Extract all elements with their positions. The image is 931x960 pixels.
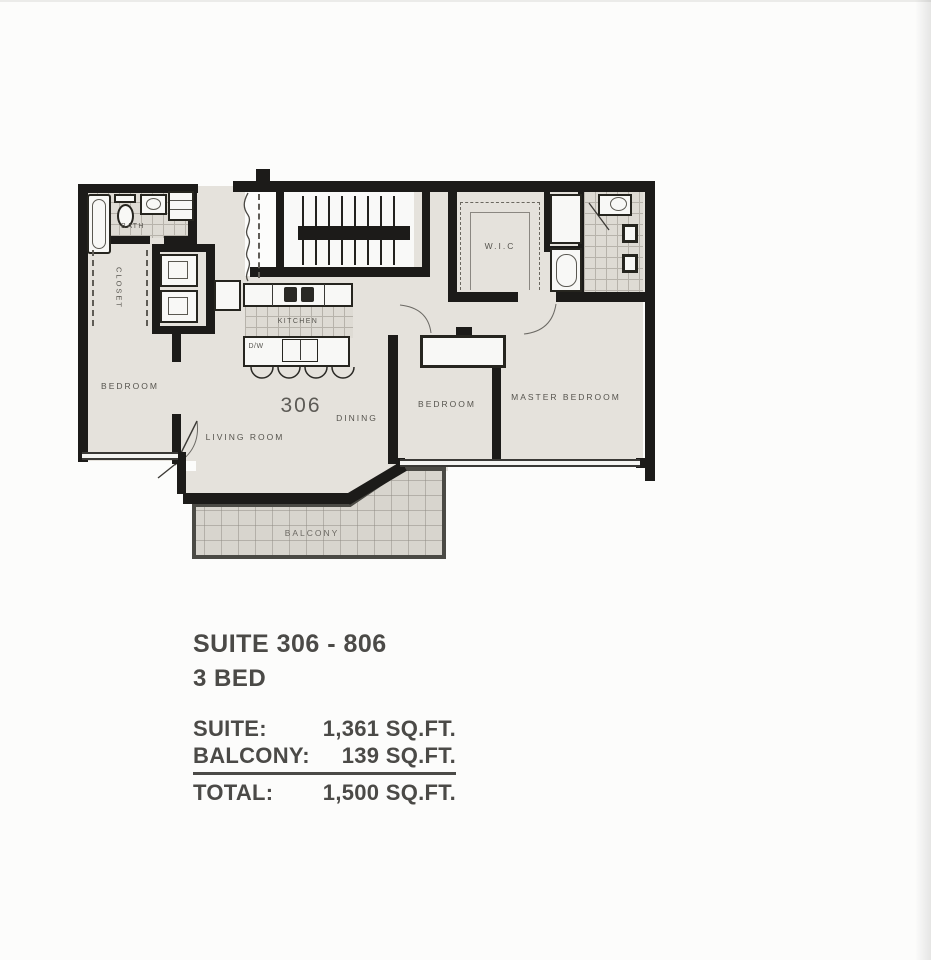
area-row-balcony: BALCONY: 139 SQ.FT.: [193, 742, 456, 769]
total-divider: [193, 772, 456, 775]
wall: [422, 192, 430, 277]
living-bay-floor: [186, 471, 350, 495]
wall: [448, 292, 518, 302]
area-value: 139 SQ.FT.: [342, 742, 456, 769]
scan-edge-top: [0, 0, 931, 2]
summary-block: SUITE 306 - 806 3 BED SUITE: 1,361 SQ.FT…: [193, 630, 463, 806]
area-value: 1,361 SQ.FT.: [323, 715, 456, 742]
wall: [250, 267, 430, 277]
wall: [645, 181, 655, 481]
shelf-line: [170, 200, 192, 201]
area-row-suite: SUITE: 1,361 SQ.FT.: [193, 715, 456, 742]
fridge-icon: [214, 280, 241, 311]
label-bedroom-mid: BEDROOM: [418, 399, 476, 409]
entry-closet-curve: [244, 193, 249, 281]
wall: [276, 192, 284, 269]
label-living-room: LIVING ROOM: [206, 432, 285, 442]
label-bath: BATH: [121, 223, 145, 230]
wall: [448, 192, 457, 299]
label-wic: W.I.C: [485, 241, 516, 251]
scan-edge-right: [915, 0, 931, 960]
stair-landing: [298, 226, 410, 240]
window-wall: [82, 452, 178, 460]
stall-inner: [556, 254, 577, 287]
linen-shelf-icon: [168, 191, 194, 221]
counter-divider: [324, 284, 325, 306]
bedroom-closet: [420, 335, 506, 368]
shelf-line: [170, 209, 192, 210]
ensuite-sink-basin: [610, 197, 627, 211]
label-dining: DINING: [336, 413, 378, 423]
ensuite-fixture-icon: [622, 254, 638, 273]
label-suite-number: 306: [280, 394, 321, 418]
area-row-total: TOTAL: 1,500 SQ.FT.: [193, 779, 456, 806]
closet-rod-dash: [146, 250, 148, 326]
sink-divider: [300, 340, 301, 360]
wall: [152, 326, 215, 334]
label-bedroom-left: BEDROOM: [101, 381, 159, 391]
wall: [413, 181, 655, 192]
dryer-door: [168, 297, 188, 315]
counter-divider: [272, 284, 273, 306]
shower-icon: [550, 194, 582, 244]
wall: [183, 493, 351, 504]
area-label: SUITE:: [193, 715, 267, 742]
wall: [233, 181, 430, 192]
area-label: TOTAL:: [193, 779, 273, 806]
area-value: 1,500 SQ.FT.: [323, 779, 456, 806]
balcony-door-leaf: [158, 462, 178, 478]
window-wall: [400, 459, 640, 467]
suite-subtitle: 3 BED: [193, 665, 463, 693]
bathtub-inner: [92, 199, 106, 249]
area-label: BALCONY:: [193, 742, 310, 769]
wall: [152, 244, 160, 332]
toilet-tank-icon: [114, 194, 136, 203]
kitchen-counter: [243, 283, 353, 307]
label-kitchen: KITCHEN: [278, 318, 319, 325]
wall: [172, 330, 181, 362]
entry-door-stub: [256, 169, 270, 182]
wic-organizer-shelf: [470, 212, 530, 290]
living-bay-triangle: [350, 471, 403, 495]
wall: [492, 360, 501, 464]
wall: [556, 292, 655, 302]
washer-door: [168, 261, 188, 279]
label-master-bedroom: MASTER BEDROOM: [511, 391, 621, 405]
stove-icon: [284, 287, 297, 302]
label-balcony: BALCONY: [285, 528, 340, 538]
wall: [388, 335, 398, 464]
plan-linework: [0, 0, 931, 960]
closet-rod-dash: [92, 250, 94, 326]
bath-sink-basin: [146, 198, 161, 210]
suite-title: SUITE 306 - 806: [193, 630, 463, 659]
wall: [164, 236, 197, 244]
label-closet: CLOSET: [115, 267, 124, 309]
area-table: SUITE: 1,361 SQ.FT. BALCONY: 139 SQ.FT. …: [193, 715, 456, 806]
floorplan-page: BATH CLOSET BEDROOM KITCHEN D/W LIVING R…: [0, 0, 931, 960]
label-dw: D/W: [248, 343, 263, 350]
stove-icon: [301, 287, 314, 302]
entry-closet-dash: [258, 194, 260, 278]
bedrooms-floor: [396, 293, 643, 463]
wall: [177, 452, 186, 494]
ensuite-toilet-icon: [622, 224, 638, 243]
